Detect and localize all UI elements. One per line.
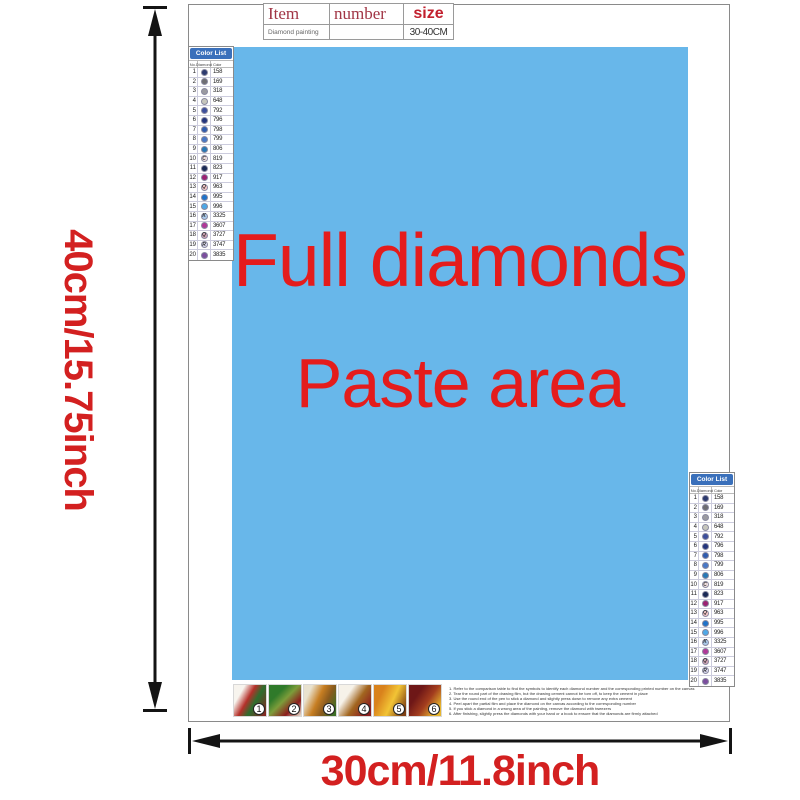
diamond-symbol-icon: [699, 523, 712, 532]
color-list-row: 2169: [690, 504, 734, 514]
diamond-symbol-icon: Q: [699, 609, 712, 618]
dmc-color-code: 963: [211, 184, 233, 190]
diamond-symbol-icon: [699, 561, 712, 570]
info-value-size: 30-40CM: [404, 25, 453, 39]
diamond-symbol-icon: [699, 552, 712, 561]
row-number: 1: [690, 494, 699, 503]
paste-area-text: Paste area: [296, 348, 625, 418]
dmc-color-code: 798: [211, 127, 233, 133]
full-diamonds-text: Full diamonds: [233, 223, 687, 298]
dmc-color-code: 823: [712, 591, 734, 597]
instructions: 1. Refer to the comparison table to find…: [449, 686, 697, 716]
diamond-symbol-icon: C: [198, 154, 211, 163]
color-list-row: 8799: [690, 561, 734, 571]
row-number: 20: [690, 676, 699, 686]
diamond-symbol-icon: [198, 135, 211, 144]
row-number: 12: [690, 600, 699, 609]
diamond-symbol-icon: [699, 628, 712, 637]
color-list-row: 5792: [189, 106, 233, 116]
dmc-color-code: 819: [211, 156, 233, 162]
diamond-symbol-icon: [198, 106, 211, 115]
dmc-color-code: 3747: [211, 242, 233, 248]
row-number: 18: [690, 657, 699, 666]
info-table-data-row: Diamond painting 30-40CM: [264, 25, 453, 39]
diamond-symbol-icon: Q: [198, 183, 211, 192]
column-color: Color: [211, 62, 233, 67]
steps-strip: 123456: [233, 684, 442, 717]
diamond-symbol-icon: [699, 504, 712, 513]
row-number: 15: [189, 202, 198, 211]
dmc-color-code: 3325: [211, 213, 233, 219]
color-list-body: 11582169331846485792679677988799980610C8…: [189, 68, 233, 260]
color-list-row: 13Q963: [189, 183, 233, 193]
row-number: 10: [189, 154, 198, 163]
dmc-color-code: 158: [712, 495, 734, 501]
column-color: Color: [712, 488, 734, 493]
row-number: 2: [690, 504, 699, 513]
info-table-header-row: Item number size: [264, 4, 453, 25]
diamond-symbol-icon: [198, 68, 211, 77]
color-list-row: 203835: [690, 676, 734, 686]
dmc-color-code: 996: [712, 630, 734, 636]
row-number: 2: [189, 78, 198, 87]
diamond-symbol-icon: [699, 532, 712, 541]
dmc-color-code: 3727: [712, 658, 734, 664]
column-diamond: Diamond: [198, 61, 211, 67]
color-list-row: 9806: [690, 571, 734, 581]
row-number: 4: [690, 523, 699, 532]
diamond-symbol-icon: R: [699, 667, 712, 676]
dmc-color-code: 648: [211, 98, 233, 104]
color-list-row: 18Q3727: [690, 657, 734, 667]
color-list-row: 14995: [690, 619, 734, 629]
color-list-row: 6796: [189, 116, 233, 126]
row-number: 3: [189, 87, 198, 96]
color-list-row: 1158: [189, 68, 233, 78]
row-number: 19: [189, 241, 198, 250]
dmc-color-code: 318: [211, 88, 233, 94]
diamond-symbol-icon: [699, 542, 712, 551]
color-list-row: 11823: [690, 590, 734, 600]
diamond-symbol-icon: [699, 571, 712, 580]
diamond-symbol-icon: [198, 222, 211, 231]
dmc-color-code: 798: [712, 553, 734, 559]
row-number: 6: [189, 116, 198, 125]
row-number: 17: [690, 648, 699, 657]
step-photo: 6: [408, 684, 442, 717]
diamond-symbol-icon: [198, 202, 211, 211]
dmc-color-code: 799: [712, 562, 734, 568]
row-number: 10: [690, 580, 699, 589]
color-list-row: 9806: [189, 145, 233, 155]
dmc-color-code: 3835: [712, 678, 734, 684]
dmc-color-code: 819: [712, 582, 734, 588]
dmc-color-code: 823: [211, 165, 233, 171]
dmc-color-code: 3607: [712, 649, 734, 655]
color-list-column-headers: No. Diamond Color: [690, 486, 734, 494]
color-list-row: 3318: [690, 513, 734, 523]
diamond-symbol-icon: [699, 494, 712, 503]
color-list-row: 5792: [690, 532, 734, 542]
step-photo: 4: [338, 684, 372, 717]
diamond-symbol-icon: [699, 513, 712, 522]
color-list-row: 6796: [690, 542, 734, 552]
row-number: 11: [690, 590, 699, 599]
color-list-title: Color List: [691, 474, 733, 485]
color-list-row: 12917: [189, 174, 233, 184]
row-number: 7: [189, 126, 198, 135]
color-list-row: 15996: [189, 202, 233, 212]
dmc-color-code: 996: [211, 204, 233, 210]
color-list-row: 19R3747: [690, 667, 734, 677]
column-diamond: Diamond: [699, 487, 712, 493]
diamond-symbol-icon: [198, 116, 211, 125]
color-list-row: 173607: [690, 648, 734, 658]
row-number: 8: [690, 561, 699, 570]
dmc-color-code: 917: [712, 601, 734, 607]
step-photo: 1: [233, 684, 267, 717]
color-list-body: 11582169331846485792679677988799980610C8…: [690, 494, 734, 686]
color-list-title: Color List: [190, 48, 232, 59]
diamond-symbol-icon: [198, 78, 211, 87]
color-list-row: 1158: [690, 494, 734, 504]
row-number: 16: [690, 638, 699, 647]
diamond-symbol-icon: [699, 648, 712, 657]
dmc-color-code: 3727: [211, 232, 233, 238]
dmc-color-code: 796: [712, 543, 734, 549]
diamond-symbol-icon: [699, 676, 712, 686]
info-value-item: Diamond painting: [264, 25, 330, 39]
diamond-symbol-icon: K: [198, 212, 211, 221]
color-list-row: 203835: [189, 250, 233, 260]
dmc-color-code: 796: [211, 117, 233, 123]
row-number: 14: [690, 619, 699, 628]
color-list-row: 11823: [189, 164, 233, 174]
row-number: 7: [690, 552, 699, 561]
dmc-color-code: 963: [712, 610, 734, 616]
row-number: 5: [189, 106, 198, 115]
dmc-color-code: 792: [211, 108, 233, 114]
instruction-line: 6. After finishing, slightly press the d…: [449, 711, 697, 716]
height-dimension-label: 40cm/15.75inch: [54, 165, 100, 575]
dmc-color-code: 995: [211, 194, 233, 200]
row-number: 9: [189, 145, 198, 154]
row-number: 1: [189, 68, 198, 77]
row-number: 8: [189, 135, 198, 144]
diamond-symbol-icon: [699, 619, 712, 628]
row-number: 3: [690, 513, 699, 522]
info-header-size: size: [404, 4, 453, 24]
diamond-symbol-icon: C: [699, 580, 712, 589]
diamond-symbol-icon: [198, 97, 211, 106]
step-number-badge: 2: [288, 703, 300, 715]
diamond-symbol-icon: [699, 590, 712, 599]
dmc-color-code: 995: [712, 620, 734, 626]
color-list-column-headers: No. Diamond Color: [189, 60, 233, 68]
color-list-row: 13Q963: [690, 609, 734, 619]
info-header-number: number: [330, 4, 404, 24]
color-list-row: 8799: [189, 135, 233, 145]
row-number: 5: [690, 532, 699, 541]
step-photo: 2: [268, 684, 302, 717]
row-number: 13: [189, 183, 198, 192]
dmc-color-code: 792: [712, 534, 734, 540]
dmc-color-code: 169: [712, 505, 734, 511]
step-number-badge: 6: [428, 703, 440, 715]
diamond-symbol-icon: [198, 126, 211, 135]
color-list-row: 4648: [189, 97, 233, 107]
row-number: 19: [690, 667, 699, 676]
step-photo: 3: [303, 684, 337, 717]
color-list-row: 173607: [189, 222, 233, 232]
dmc-color-code: 917: [211, 175, 233, 181]
row-number: 11: [189, 164, 198, 173]
info-value-number: [330, 25, 404, 39]
dmc-color-code: 806: [712, 572, 734, 578]
color-list-row: 19R3747: [189, 241, 233, 251]
color-list-row: 15996: [690, 628, 734, 638]
color-list-row: 10C819: [690, 580, 734, 590]
color-list-row: 10C819: [189, 154, 233, 164]
diamond-symbol-icon: Q: [699, 657, 712, 666]
color-list-row: 14995: [189, 193, 233, 203]
color-list: Color List No. Diamond Color 11582169331…: [689, 472, 735, 687]
dmc-color-code: 799: [211, 136, 233, 142]
diamond-symbol-icon: [699, 600, 712, 609]
row-number: 15: [690, 628, 699, 637]
item-info-table: Item number size Diamond painting 30-40C…: [263, 3, 454, 40]
row-number: 20: [189, 250, 198, 260]
dmc-color-code: 806: [211, 146, 233, 152]
height-dimension-arrow-icon: [142, 6, 168, 712]
diamond-symbol-icon: [198, 87, 211, 96]
color-list-row: 2169: [189, 78, 233, 88]
color-list-row: 16K3325: [690, 638, 734, 648]
dmc-color-code: 648: [712, 524, 734, 530]
row-number: 16: [189, 212, 198, 221]
step-photo: 5: [373, 684, 407, 717]
step-number-badge: 5: [393, 703, 405, 715]
dmc-color-code: 3835: [211, 252, 233, 258]
row-number: 18: [189, 231, 198, 240]
row-number: 6: [690, 542, 699, 551]
color-list-row: 4648: [690, 523, 734, 533]
diamond-symbol-icon: Q: [198, 231, 211, 240]
row-number: 4: [189, 97, 198, 106]
color-list-row: 3318: [189, 87, 233, 97]
diamond-symbol-icon: R: [198, 241, 211, 250]
step-number-badge: 3: [323, 703, 335, 715]
diamond-symbol-icon: [198, 250, 211, 260]
row-number: 14: [189, 193, 198, 202]
color-list: Color List No. Diamond Color 11582169331…: [188, 46, 234, 261]
step-number-badge: 4: [358, 703, 370, 715]
paste-area: Full diamonds Paste area: [232, 47, 688, 680]
diamond-symbol-icon: [198, 164, 211, 173]
diamond-symbol-icon: K: [699, 638, 712, 647]
dmc-color-code: 3747: [712, 668, 734, 674]
width-dimension-label: 30cm/11.8inch: [240, 747, 680, 796]
color-list-row: 7798: [690, 552, 734, 562]
color-list-row: 16K3325: [189, 212, 233, 222]
diamond-symbol-icon: [198, 145, 211, 154]
row-number: 9: [690, 571, 699, 580]
dmc-color-code: 318: [712, 514, 734, 520]
row-number: 13: [690, 609, 699, 618]
color-list-row: 7798: [189, 126, 233, 136]
color-list-row: 18Q3727: [189, 231, 233, 241]
diamond-symbol-icon: [198, 193, 211, 202]
dmc-color-code: 3607: [211, 223, 233, 229]
dmc-color-code: 169: [211, 79, 233, 85]
dmc-color-code: 3325: [712, 639, 734, 645]
step-number-badge: 1: [253, 703, 265, 715]
diamond-symbol-icon: [198, 174, 211, 183]
dmc-color-code: 158: [211, 69, 233, 75]
row-number: 17: [189, 222, 198, 231]
color-list-row: 12917: [690, 600, 734, 610]
info-header-item: Item: [264, 4, 330, 24]
row-number: 12: [189, 174, 198, 183]
